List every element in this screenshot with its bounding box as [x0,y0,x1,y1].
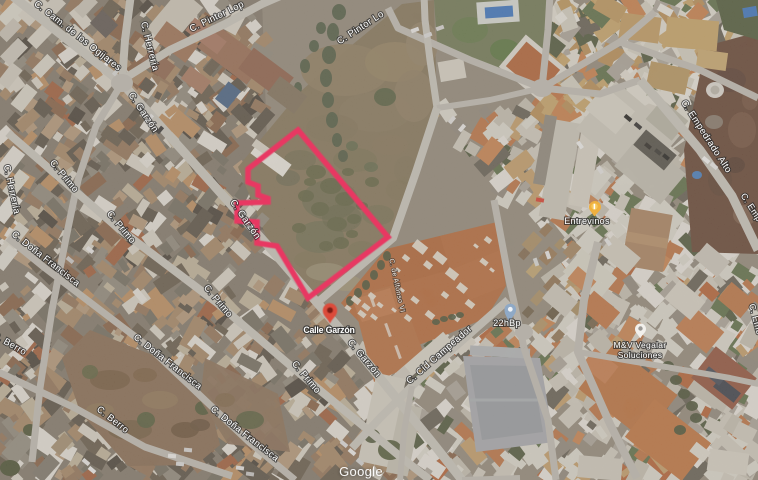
svg-text:Entrevinos: Entrevinos [564,216,610,226]
svg-text:M&V Vegalar: M&V Vegalar [614,340,667,350]
svg-text:Google: Google [339,464,383,479]
svg-text:Soluciones: Soluciones [618,350,663,360]
svg-text:22hBp: 22hBp [493,318,521,328]
svg-text:Calle Garzón: Calle Garzón [303,325,354,335]
